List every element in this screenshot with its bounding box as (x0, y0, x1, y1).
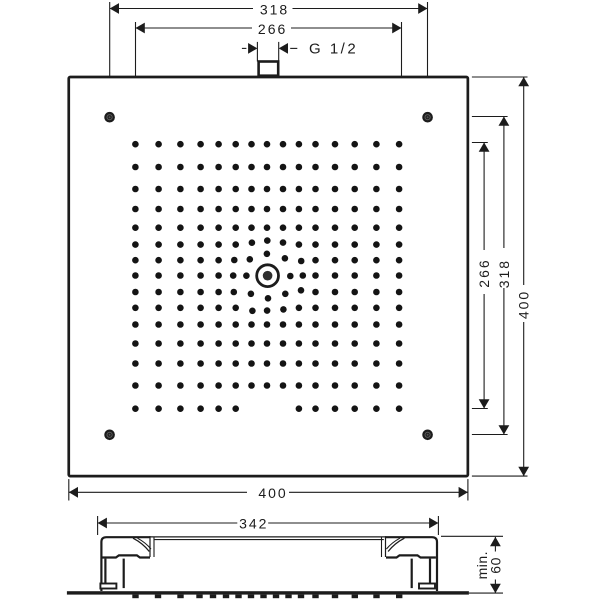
svg-text:400: 400 (258, 485, 287, 501)
svg-text:G 1/2: G 1/2 (309, 40, 358, 57)
svg-text:342: 342 (239, 516, 268, 532)
svg-text:60: 60 (488, 557, 504, 574)
svg-text:400: 400 (516, 290, 532, 319)
svg-text:318: 318 (496, 259, 512, 288)
svg-text:266: 266 (476, 258, 492, 287)
svg-text:318: 318 (260, 2, 289, 18)
svg-text:266: 266 (258, 21, 287, 37)
